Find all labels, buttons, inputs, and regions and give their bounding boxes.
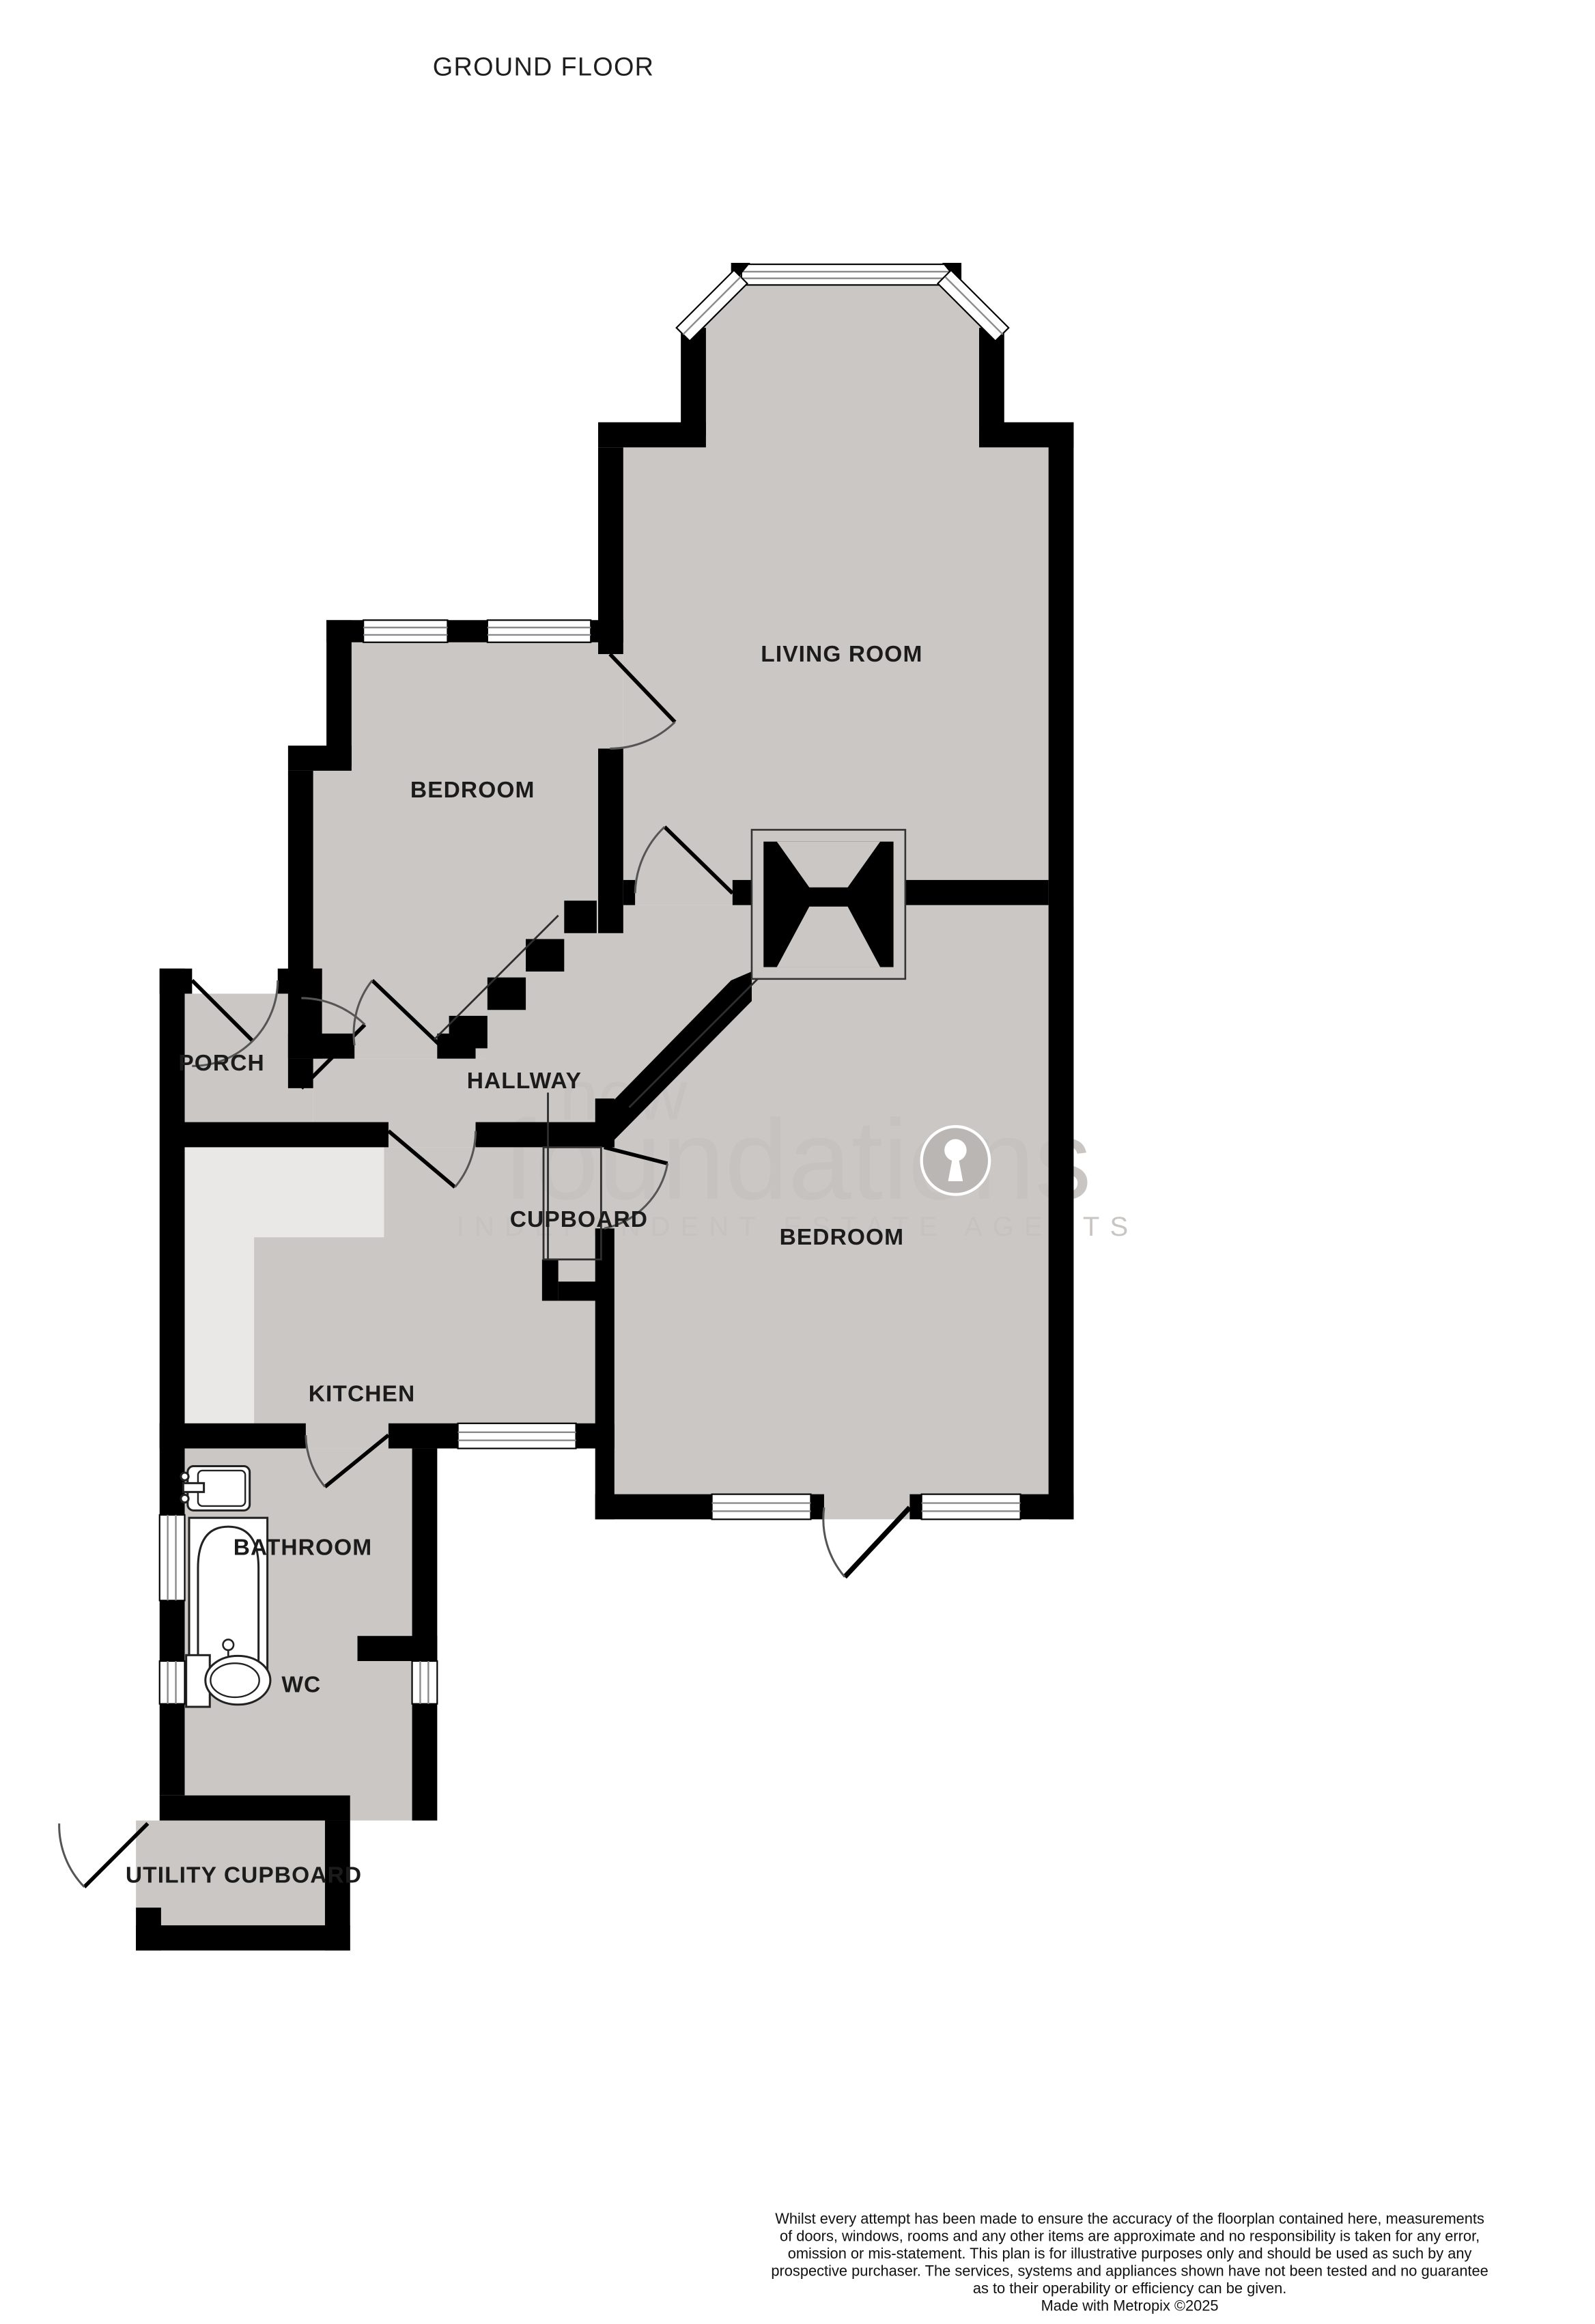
- hallway-label: HALLWAY: [467, 1068, 582, 1094]
- sink-icon: [181, 1466, 250, 1511]
- kitchen-label: KITCHEN: [309, 1381, 416, 1406]
- bedroom-right-label: BEDROOM: [780, 1225, 905, 1250]
- disclaimer: Whilst every attempt has been made to en…: [771, 2210, 1488, 2314]
- keyhole-icon: [922, 1126, 989, 1194]
- disclaimer-line-5: as to their operability or efficiency ca…: [973, 2280, 1286, 2297]
- room-living-room-floor: [688, 285, 1001, 447]
- porch-label: PORCH: [178, 1051, 264, 1076]
- floorplan-drawing: new foundations INDEPENDENT ESTATE AGENT…: [0, 0, 1595, 2324]
- page-title: GROUND FLOOR: [433, 53, 655, 81]
- living-room-label: LIVING ROOM: [761, 642, 922, 667]
- toilet-icon: [186, 1655, 270, 1707]
- utility-label: UTILITY CUPBOARD: [126, 1862, 362, 1888]
- watermark-foundations: foundations: [503, 1096, 1091, 1223]
- disclaimer-line-1: Whilst every attempt has been made to en…: [775, 2210, 1484, 2227]
- disclaimer-line-3: omission or mis-statement. This plan is …: [788, 2245, 1472, 2262]
- bedroom-top-label: BEDROOM: [410, 778, 535, 803]
- wc-label: WC: [281, 1672, 321, 1697]
- bathroom-label: BATHROOM: [234, 1535, 373, 1560]
- cupboard-label: CUPBOARD: [510, 1207, 648, 1232]
- fireplace-icon: [752, 830, 905, 978]
- metropix-credit: Made with Metropix ©2025: [1041, 2297, 1219, 2314]
- disclaimer-line-2: of doors, windows, rooms and any other i…: [780, 2227, 1480, 2244]
- floorplan-page: new foundations INDEPENDENT ESTATE AGENT…: [0, 0, 1595, 2324]
- disclaimer-line-4: prospective purchaser. The services, sys…: [771, 2262, 1488, 2279]
